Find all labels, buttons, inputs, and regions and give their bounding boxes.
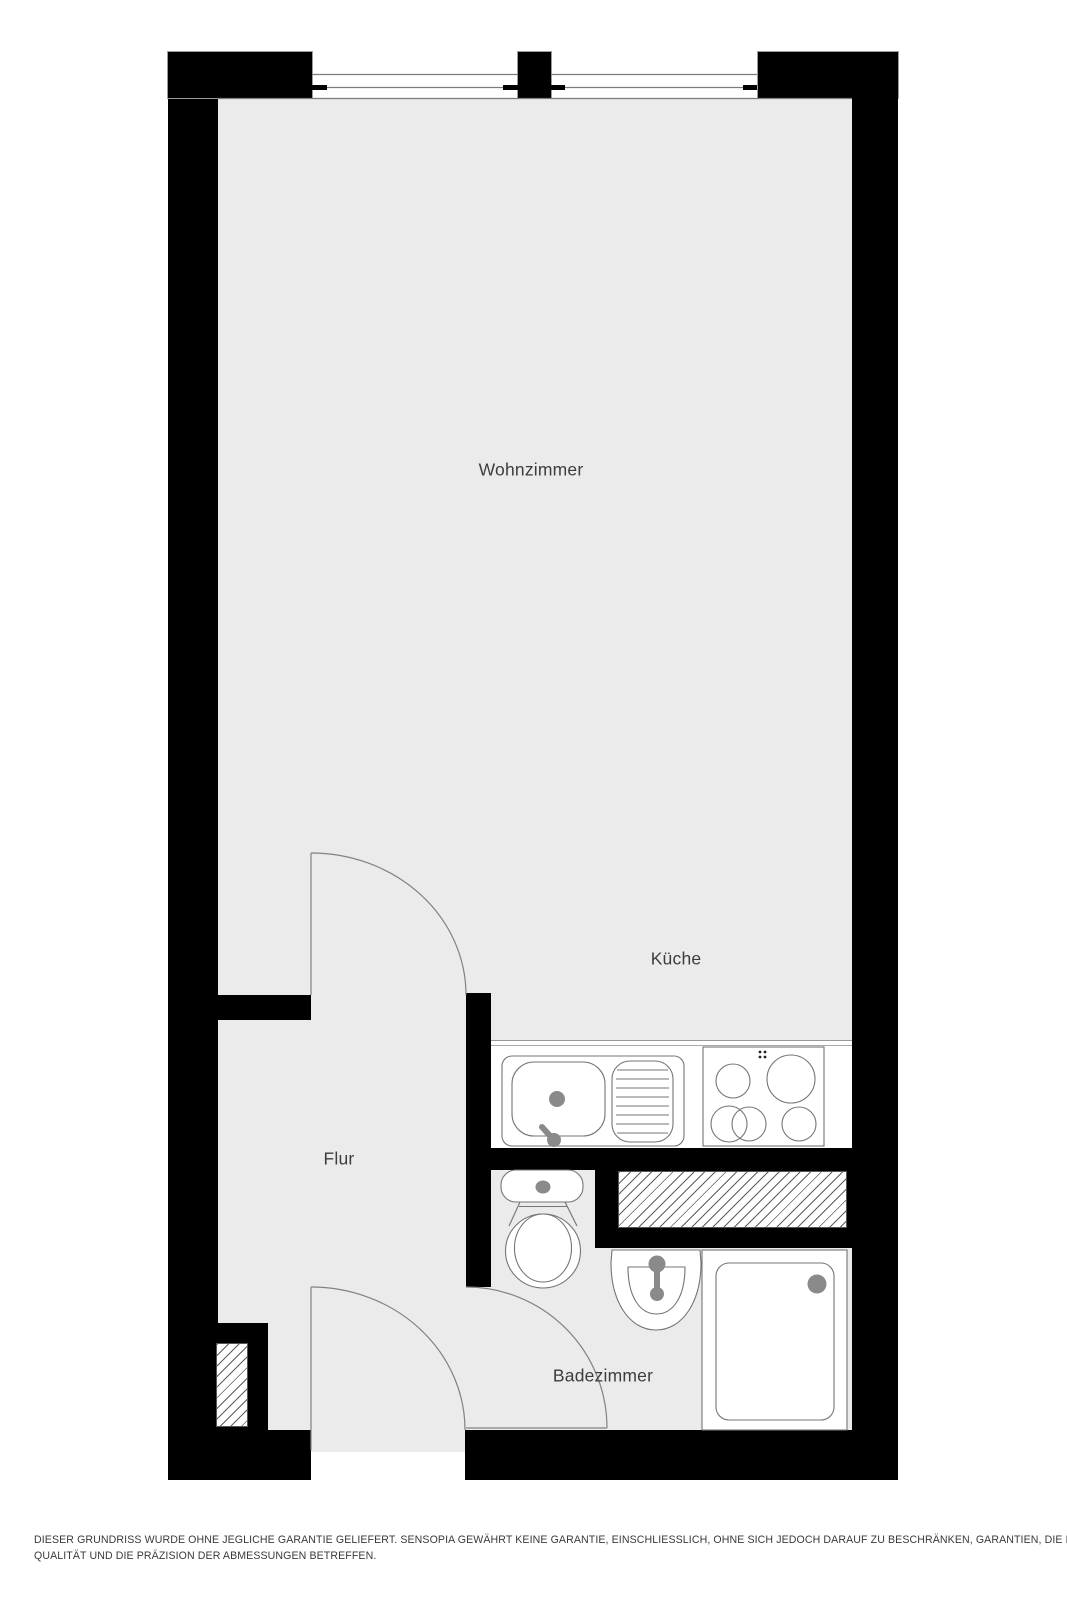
window-1-icon bbox=[312, 75, 518, 91]
room-label-kueche: Küche bbox=[651, 949, 702, 970]
window-2-icon bbox=[551, 75, 757, 91]
disclaimer-text: DIESER GRUNDRISS WURDE OHNE JEGLICHE GAR… bbox=[34, 1533, 1067, 1564]
door-swing-living-icon bbox=[311, 853, 466, 995]
disclaimer-line-1: DIESER GRUNDRISS WURDE OHNE JEGLICHE GAR… bbox=[34, 1533, 1067, 1549]
kitchen-sink-icon bbox=[502, 1056, 684, 1147]
door-swing-entrance-icon bbox=[311, 1287, 465, 1450]
room-label-flur: Flur bbox=[324, 1149, 355, 1170]
washbasin-icon bbox=[611, 1250, 701, 1330]
toilet-icon bbox=[501, 1170, 583, 1288]
fixtures-overlay bbox=[0, 0, 1067, 1600]
shower-tray-icon bbox=[702, 1250, 847, 1430]
door-swing-bathroom-icon bbox=[466, 1287, 607, 1428]
floor-plan-page: Wohnzimmer Küche Flur Badezimmer DIESER … bbox=[0, 0, 1067, 1600]
disclaimer-line-2: QUALITÄT UND DIE PRÄZISION DER ABMESSUNG… bbox=[34, 1549, 1067, 1565]
room-label-badezimmer: Badezimmer bbox=[553, 1366, 653, 1387]
room-label-wohnzimmer: Wohnzimmer bbox=[479, 460, 584, 481]
cooktop-icon bbox=[703, 1047, 824, 1146]
